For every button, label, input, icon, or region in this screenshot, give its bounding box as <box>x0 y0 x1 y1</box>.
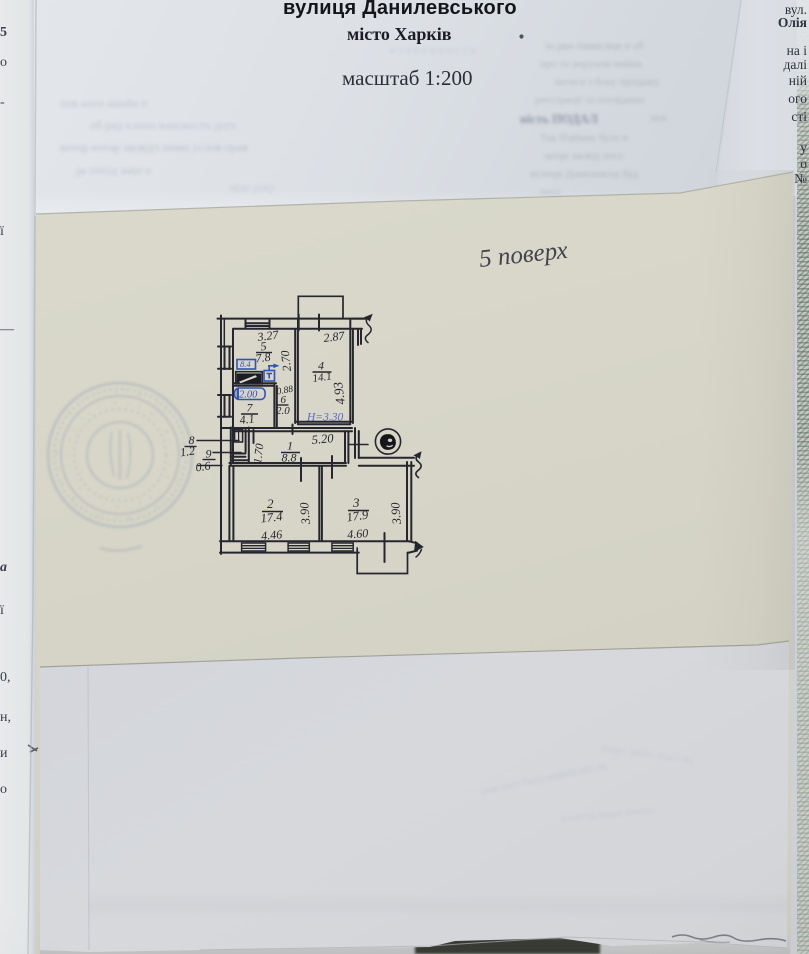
svg-text:2.87: 2.87 <box>323 328 347 345</box>
svg-text:4: 4 <box>318 359 324 373</box>
svg-text:5.20: 5.20 <box>311 431 335 447</box>
svg-text:4.60: 4.60 <box>347 526 369 541</box>
svg-text:3.90: 3.90 <box>297 501 313 526</box>
svg-text:H=3.30: H=3.30 <box>306 412 343 424</box>
svg-text:4.93: 4.93 <box>330 381 348 406</box>
svg-text:2.0: 2.0 <box>276 405 290 417</box>
svg-text:2.00: 2.00 <box>239 390 258 401</box>
svg-text:8.4: 8.4 <box>240 359 251 369</box>
svg-text:1.70: 1.70 <box>252 443 266 465</box>
svg-text:3.90: 3.90 <box>388 501 404 526</box>
svg-text:0.6: 0.6 <box>195 459 212 475</box>
svg-text:4.46: 4.46 <box>261 527 283 543</box>
svg-text:2: 2 <box>267 496 274 511</box>
svg-text:5 поверх: 5 поверх <box>478 237 569 273</box>
svg-text:2.70: 2.70 <box>278 350 294 372</box>
